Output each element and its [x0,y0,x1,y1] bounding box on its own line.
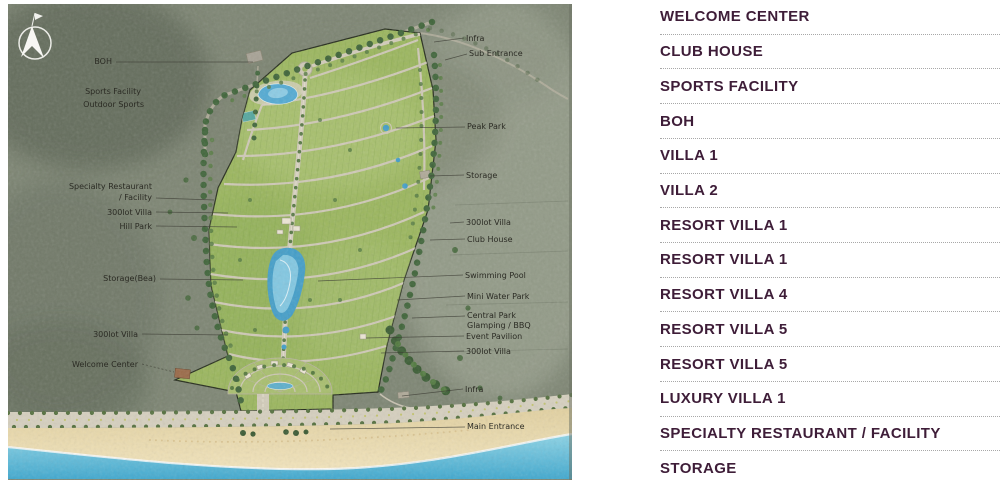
map-label-hill-park: Hill Park [119,222,152,232]
map-label-club-house: Club House [467,235,513,245]
map-label-swimming-pool: Swimming Pool [465,271,526,281]
legend-item-resort-villa-1b: RESORT VILLA 1 [660,243,1000,278]
map-label-300lot-villa-west: 300lot Villa [107,208,152,218]
legend-item-resort-villa-5a: RESORT VILLA 5 [660,312,1000,347]
map-label-glamping-bbq: Glamping / BBQ [467,321,531,331]
map-label-peak-park: Peak Park [467,122,506,132]
legend-item-specialty-restaurant: SPECIALTY RESTAURANT / FACILITY [660,417,1000,452]
map-label-storage: Storage [466,171,497,181]
map-label-storage-bea: Storage(Bea) [103,274,156,284]
map-label-infra-bottom: Infra [465,385,483,395]
legend-item-sports-facility: SPORTS FACILITY [660,69,1000,104]
map-label-boh: BOH [94,57,112,67]
legend-panel: WELCOME CENTER CLUB HOUSE SPORTS FACILIT… [572,0,1000,485]
legend-item-label: VILLA 2 [660,182,718,199]
map-label-sports-facility: Sports Facility [85,87,141,97]
legend-item-label: RESORT VILLA 5 [660,356,788,373]
legend-item-label: SPECIALTY RESTAURANT / FACILITY [660,425,941,442]
map-label-outdoor-sports: Outdoor Sports [83,100,144,110]
legend-item-villa-2: VILLA 2 [660,174,1000,209]
legend-item-resort-villa-5b: RESORT VILLA 5 [660,347,1000,382]
legend-item-label: LUXURY VILLA 1 [660,390,786,407]
map-label-central-park: Central Park [467,311,516,321]
legend-item-label: WELCOME CENTER [660,8,810,25]
map-label-welcome-center: Welcome Center [72,360,138,370]
map-label-main-entrance: Main Entrance [467,422,524,432]
legend-item-label: BOH [660,113,695,130]
map-label-facility: / Facility [119,193,152,203]
map-label-300lot-villa-south: 300lot Villa [466,347,511,357]
site-plan-graphic [0,0,572,490]
legend-item-club-house: CLUB HOUSE [660,35,1000,70]
page: BOH Sports Facility Outdoor Sports Speci… [0,0,1000,490]
legend-item-resort-villa-4: RESORT VILLA 4 [660,278,1000,313]
legend-item-label: VILLA 1 [660,147,718,164]
map-label-mini-water-park: Mini Water Park [467,292,529,302]
map-label-specialty-restaurant: Specialty Restaurant [69,182,152,192]
legend-item-resort-villa-1a: RESORT VILLA 1 [660,208,1000,243]
legend-item-storage: STORAGE [660,451,1000,485]
legend-item-label: RESORT VILLA 5 [660,321,788,338]
legend-item-luxury-villa-1: LUXURY VILLA 1 [660,382,1000,417]
legend-item-label: CLUB HOUSE [660,43,763,60]
map-label-sub-entrance: Sub Entrance [469,49,523,59]
legend-item-label: SPORTS FACILITY [660,78,799,95]
map-label-300lot-villa-east: 300lot Villa [466,218,511,228]
map-label-infra-top: Infra [466,34,484,44]
legend-item-villa-1: VILLA 1 [660,139,1000,174]
master-plan-map: BOH Sports Facility Outdoor Sports Speci… [0,0,572,490]
legend-item-label: RESORT VILLA 4 [660,286,788,303]
legend-item-label: RESORT VILLA 1 [660,251,788,268]
legend-item-label: STORAGE [660,460,737,477]
legend-item-label: RESORT VILLA 1 [660,217,788,234]
legend-item-welcome-center: WELCOME CENTER [660,0,1000,35]
map-label-300lot-villa-southwest: 300lot Villa [93,330,138,340]
legend-item-boh: BOH [660,104,1000,139]
map-label-event-pavilion: Event Pavilion [466,332,522,342]
